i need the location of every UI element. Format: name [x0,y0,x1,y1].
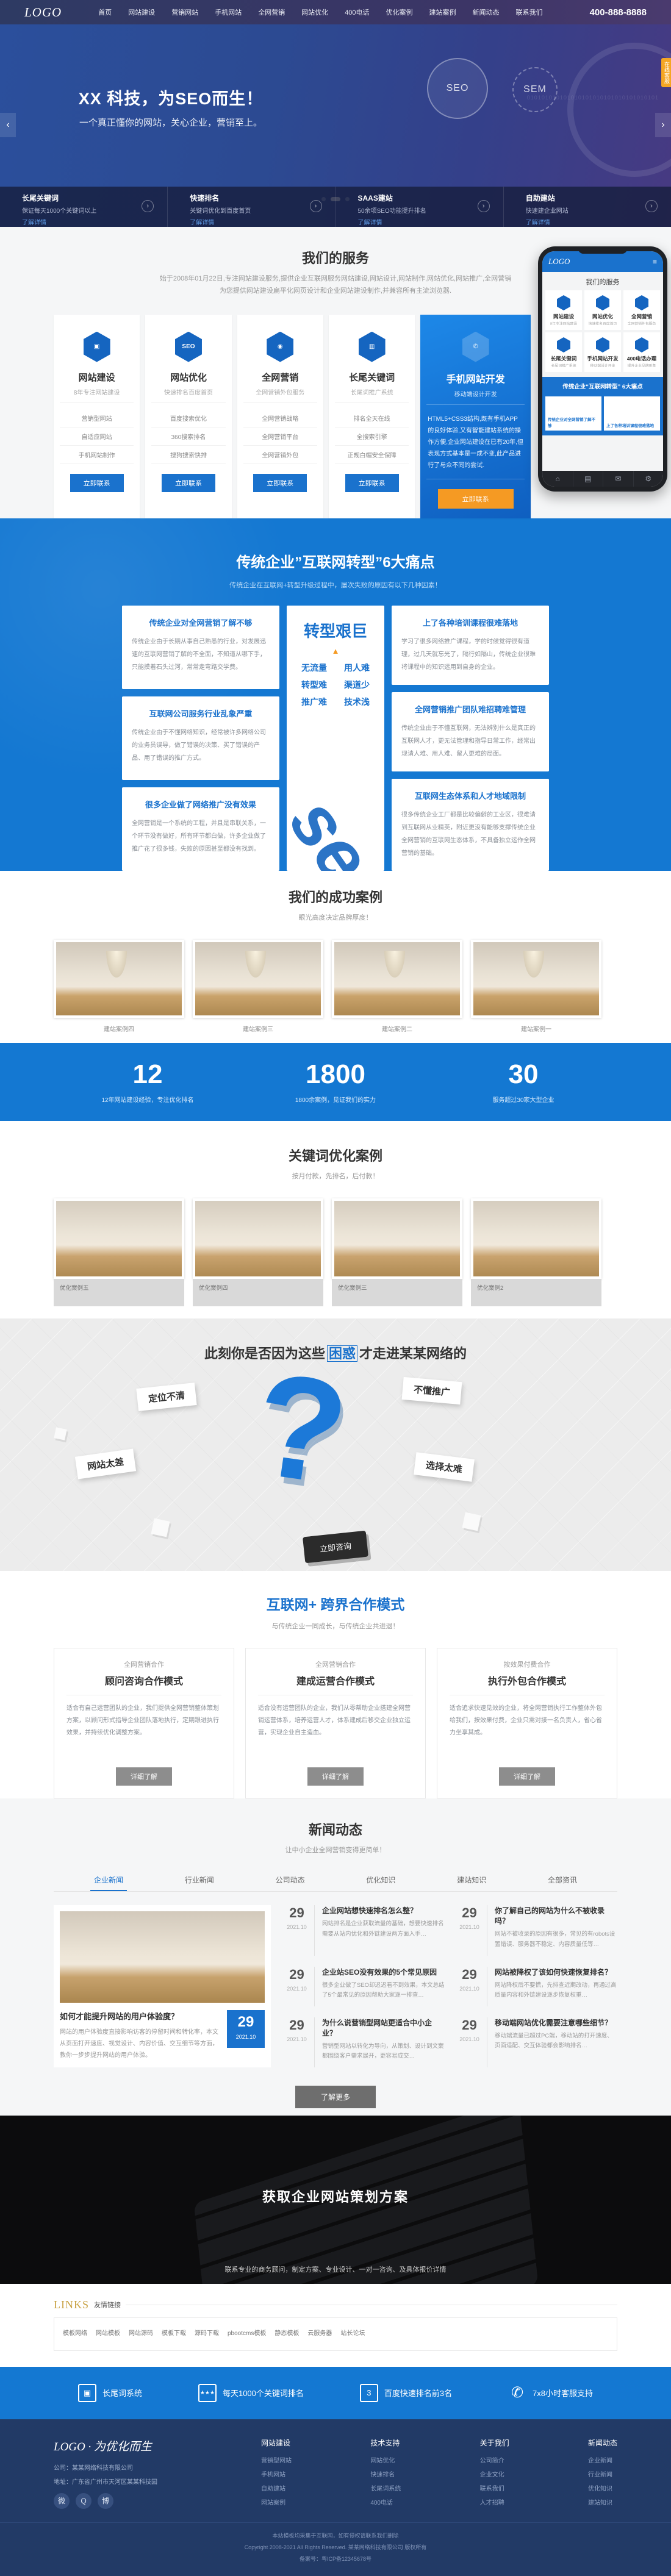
footer-col-build: 网站建设 营销型网站 手机网站 自助建站 网站案例 [261,2438,292,2511]
coop-card-build: 全网营销合作 建成运营合作模式 适合没有运营团队的企业，我们从零帮助企业搭建全网… [245,1648,426,1798]
nav-home[interactable]: 首页 [98,7,112,17]
tile-name: 400电话办理 [625,355,659,362]
tab-industry-news[interactable]: 行业新闻 [181,1870,218,1891]
featured-news-date: 29 2021.10 [227,2010,265,2048]
case-caption: 建站案例三 [193,1024,323,1033]
footer-link[interactable]: 优化知识 [588,2483,617,2492]
news-item[interactable]: 292021.10 为什么说营销型网站更适合中小企业？营销型网站以转化为导向，从… [285,2017,445,2067]
stat-desc: 服务超过30家大型企业 [429,1095,617,1104]
tab-company-updates[interactable]: 公司动态 [272,1870,309,1891]
coop-card-big: 顾问咨询合作模式 [66,1673,221,1695]
friend-link[interactable]: 云服务器 [307,2328,332,2337]
tile-sub: 长尾词推广系统 [548,363,579,368]
service-item: 自适应网站 [60,428,134,446]
stat-cases: 1800 1800余案例，见证我们的实力 [242,1059,429,1104]
date-ym: 2021.10 [459,2036,479,2042]
featured-news-excerpt: 网站的用户体验度直接影响访客的停留时间和转化率，本文从页面打开速度、视觉设计、内… [60,2027,220,2061]
phone-tile[interactable]: 全网营销全网营销外包服务 [623,290,660,330]
copyright-line2: Copyright 2008-2021 All Rights Reserved.… [0,2543,671,2551]
feature-keywords: ★★★ 每天1000个关键词排名 [198,2384,304,2402]
pain-card-title: 上了各种培训课程很难落地 [401,617,539,628]
pain-keyword: 推广难 [301,696,327,708]
contact-button[interactable]: 立即联系 [70,474,124,492]
phone-pain-box: 上了各种培训课程很难落地 [604,396,660,431]
service-card-longtail: ▥ 长尾关键词 长尾词推广系统 排名全天在线 全搜索引擎 正规白帽安全保障 立即… [329,315,415,518]
stat-number: 30 [429,1059,617,1090]
main-nav: 首页 网站建设 营销网站 手机网站 全网营销 网站优化 400电话 优化案例 建… [98,7,589,17]
carousel-next-arrow[interactable]: › [655,113,671,137]
cta-subtitle: 联系专业的商务顾问，制定方案、专业设计、一对一咨询、及具体报价详情 [0,2264,671,2274]
featured-news-title: 如何才能提升网站的用户体验度？ [60,2010,220,2022]
phone-pain-boxes: 传统企业对全网营销了解不够 上了各种培训课程很难落地 [542,394,663,435]
keyword-cases-section: 关键词优化案例 按月付款，先排名，后付款！ 优化案例五 优化案例四 优化案例三 … [0,1121,671,1318]
hamburger-icon[interactable]: ≡ [653,257,657,266]
tile-sub: 移动端设计开发 [587,363,618,368]
service-card-mobile-highlight: ✆ 手机网站开发 移动端设计开发 HTML5+CSS3结构,既有手机APP的良好… [420,315,531,518]
pain-points-section: 传统企业”互联网转型”6大痛点 传统企业在互联网+转型升级过程中，屡次失败的原因… [0,518,671,871]
footer-link[interactable]: 企业新闻 [588,2455,617,2464]
coop-card-text: 适合有自己运营团队的企业，我们提供全网营销整体策划方案，以顾问形式指导企业团队落… [66,1703,221,1761]
footer-link[interactable]: 营销型网站 [261,2455,292,2464]
coop-title: 互联网+ 跨界合作模式 [0,1593,671,1614]
pain-right-column: 上了各种培训课程很难落地 学习了很多网络推广课程，学的时候觉得很有道理，过几天就… [392,606,549,871]
footer-copyright: 本站模板均采集于互联网，如有侵权请联系我们删除 Copyright 2008-2… [0,2522,671,2576]
news-item-title: 为什么说营销型网站更适合中小企业？ [322,2017,445,2038]
strip-col-fast-rank: 快速排名 关键词优化到百度首页 了解详情 › [167,187,335,227]
pain-grid: 传统企业对全网营销了解不够 传统企业由于长期从事自己熟悉的行业，对发展迅速的互联… [122,606,549,871]
news-section: 新闻动态 让中小企业全网营销变得更简单！ 企业新闻 行业新闻 公司动态 优化知识… [0,1798,671,2116]
tile-name: 网站优化 [586,313,620,320]
hero-carousel: SEO SEM 01010101010101010101010101010101… [0,24,671,227]
news-item-title: 网站被降权了该如何快速恢复排名？ [495,1967,617,1977]
hero-title: XX 科技，为SEO而生！ [0,85,342,109]
pain-card-text: 学习了很多网络推广课程，学的时候觉得很有道理，过几天就忘光了，隔行如隔山，传统企… [401,635,539,674]
footer-link[interactable]: 400电话 [370,2497,401,2506]
news-item-date: 292021.10 [285,1967,315,2006]
contact-button[interactable]: 立即联系 [162,474,215,492]
weibo-icon[interactable]: 博 [98,2493,113,2509]
kcase-item[interactable]: 优化案例四 [193,1198,323,1306]
pain-card-title: 传统企业对全网营销了解不够 [132,617,270,628]
nav-mobile-site[interactable]: 手机网站 [215,7,242,17]
tab-all-news[interactable]: 全部资讯 [544,1870,581,1891]
phone-section-title: 我们的服务 [542,277,663,287]
strip-col-saas: SAAS建站 50余项SEO功能提升排名 了解详情 › [335,187,503,227]
feature-baidu-rank: 3 百度快速排名前3名 [360,2384,452,2402]
friend-link[interactable]: 站长论坛 [340,2328,365,2337]
nav-seo[interactable]: 网站优化 [301,7,328,17]
friend-link[interactable]: 模板下载 [162,2328,186,2337]
chevron-circle-icon[interactable]: › [645,200,658,212]
stat-clients: 30 服务超过30家大型企业 [429,1059,617,1104]
nav-whole-net-marketing[interactable]: 全网营销 [258,7,285,17]
nav-400-phone[interactable]: 400电话 [345,7,369,17]
pain-card: 全网营销推广团队难招聘难管理 传统企业由于不懂互联网，无法辨别什么是真正的互联网… [392,692,549,771]
tile-name: 网站建设 [547,313,581,320]
tab-seo-knowledge[interactable]: 优化知识 [362,1870,399,1891]
confusion-label-hard-choice: 选择太难 [414,1452,475,1481]
coop-card-small: 按效果付费合作 [450,1659,605,1669]
links-en-label: LINKS [54,2299,89,2311]
monitor-icon: ▣ [84,332,110,362]
nav-seo-cases[interactable]: 优化案例 [386,7,413,17]
hexagon-icon [635,337,648,352]
pain-card-title: 全网营销推广团队难招聘难管理 [401,703,539,715]
footer-company: 公司：某某网络科技有限公司 [54,2463,237,2472]
tile-sub: 快速排名百度首页 [587,321,618,326]
cube-decor [54,1427,66,1440]
footer-col-heading: 网站建设 [261,2438,292,2448]
case-photo [471,940,601,1018]
kcases-title: 关键词优化案例 [0,1145,671,1165]
hexagon-icon [635,295,648,310]
service-item: 百度搜索优化 [151,409,225,428]
case-item[interactable]: 建站案例四 [54,940,184,1033]
online-service-tab[interactable]: 在线客服 [661,58,671,87]
service-item: 全网营销平台 [243,428,317,446]
footer-link[interactable]: 行业新闻 [588,2469,617,2478]
footer-company-block: LOGO · 为优化而生 公司：某某网络科技有限公司 地址：广东省广州市天河区某… [54,2438,237,2511]
pain-card: 很多企业做了网络推广没有效果 全网营销是一个系统的工程，并且是串联关系，一个环节… [122,787,279,871]
date-day: 29 [227,2014,265,2031]
coop-card-big: 执行外包合作模式 [450,1673,605,1695]
case-caption: 建站案例二 [332,1024,462,1033]
service-card-title: 网站优化 [151,371,225,384]
pain-card-text: 传统企业由于不懂互联网，无法辨别什么是真正的互联网人才，更无法管理和指导日常工作… [401,722,539,760]
stat-desc: 12年网站建设经验，专注优化排名 [54,1095,242,1104]
friend-link[interactable]: 网站模板 [96,2328,120,2337]
chart-icon: ▥ [359,332,386,362]
pain-card-text: 传统企业由于长期从事自己熟悉的行业，对发展迅速的互联网营销了解的不全面，不知道从… [132,635,270,674]
kcase-caption: 优化案例四 [193,1279,323,1306]
hotline-number: 400-888-8888 [590,7,647,18]
footer-link[interactable]: 人才招聘 [480,2497,509,2506]
home-icon[interactable]: ⌂ [542,471,573,487]
feature-text: 百度快速排名前3名 [384,2387,452,2399]
copyright-line1: 本站模板均采集于互联网，如有侵权请联系我们删除 [0,2531,671,2539]
success-cases-section: 我们的成功案例 眼光高度决定品牌厚度！ 建站案例四 建站案例三 建站案例二 建站… [0,871,671,1043]
pain-card: 互联网公司服务行业乱象严重 传统企业由于不懂网络知识，经常被许多网络公司的业务员… [122,696,279,780]
nav-marketing-site[interactable]: 营销网站 [171,7,198,17]
news-title: 新闻动态 [0,1819,671,1839]
friend-link[interactable]: 静态模板 [274,2328,299,2337]
pain-left-column: 传统企业对全网营销了解不够 传统企业由于长期从事自己熟悉的行业，对发展迅速的互联… [122,606,279,871]
nav-news[interactable]: 新闻动态 [473,7,500,17]
news-item-title: 你了解自己的网站为什么不被收录吗？ [495,1905,617,1926]
grid-icon[interactable]: ▤ [573,471,603,487]
phone-screen: LOGO ≡ 我们的服务 网站建设8年专注网站建设 网站优化快速排名百度首页 全… [542,251,663,487]
news-item-excerpt: 网站降权后不要慌，先排查近期改动，再通过高质量内容和外链建设逐步恢复权重… [495,1981,617,2000]
case-photo [193,940,323,1018]
services-desc-line2: 为您提供网站建设扁平化网页设计和企业网站建设制作,并兼容所有主流浏览器. [220,287,451,295]
cube-decor [151,1518,170,1537]
feature-bar: ▣ 长尾词系统 ★★★ 每天1000个关键词排名 3 百度快速排名前3名 ✆ 7… [0,2367,671,2419]
settings-icon[interactable]: ⚙ [633,471,664,487]
date-day: 29 [285,1905,308,1921]
icp-number[interactable]: 备案号：粤ICP备12345678号 [0,2555,671,2563]
friend-link[interactable]: 源码下载 [195,2328,219,2337]
news-item-excerpt: 网站不被收录的原因有很多，常见的有robots设置错误、服务器不稳定、内容质量低… [495,1930,617,1949]
phone-tile[interactable]: 400电话办理提升企业品牌形象 [623,332,660,372]
hero-subtitle: 一个真正懂你的网站，关心企业，营销至上。 [0,116,342,129]
service-card-title: 网站建设 [60,371,134,384]
friend-links-section: LINKS 友情链接 模板网络 网站模板 网站源码 模板下载 源码下载 pboo… [0,2284,671,2367]
hexagon-icon [596,295,609,310]
date-day: 29 [458,1967,481,1983]
phone-pain-box: 传统企业对全网营销了解不够 [545,396,601,431]
phone-tile[interactable]: 长尾关键词长尾词推广系统 [545,332,582,372]
date-ym: 2021.10 [236,2034,256,2040]
footer-link[interactable]: 网站案例 [261,2497,292,2506]
seo-watermark: seo [287,785,384,871]
confusion-label-positioning: 定位不清 [136,1383,196,1411]
news-item-excerpt: 网站排名是企业获取流量的基础，想要快速排名需要从站内优化和外链建设两方面入手… [322,1919,445,1939]
carousel-prev-arrow[interactable]: ‹ [0,113,16,137]
site-logo[interactable]: LOGO [24,5,62,20]
nav-site-cases[interactable]: 建站案例 [429,7,456,17]
footer-logo: LOGO · 为优化而生 [54,2438,237,2454]
monitor-icon: ▣ [78,2384,96,2402]
service-card-sub: 全网营销外包服务 [243,387,317,403]
links-box: 模板网络 网站模板 网站源码 模板下载 源码下载 pbootcms模板 静态模板… [54,2317,617,2351]
tile-name: 全网营销 [625,313,659,320]
kcase-item[interactable]: 优化案例三 [332,1198,462,1306]
featured-news[interactable]: 如何才能提升网站的用户体验度？ 网站的用户体验度直接影响访客的停留时间和转化率，… [54,1905,271,2067]
case-photo [332,940,462,1018]
feature-support: ✆ 7x8小时客服支持 [508,2384,593,2402]
news-item[interactable]: 292021.10 移动端网站优化需要注意哪些细节？移动端流量已超过PC端，移动… [458,2017,617,2067]
binary-decor: 010101010101010101010101010101010101 [527,95,659,101]
case-row: 建站案例四 建站案例三 建站案例二 建站案例一 [54,940,617,1033]
news-subtitle: 让中小企业全网营销变得更简单！ [0,1845,671,1857]
date-ym: 2021.10 [287,2036,307,2042]
strip-more-link[interactable]: 了解详情 [358,220,382,226]
news-item-date: 292021.10 [458,1905,487,1955]
kcase-caption: 优化案例五 [54,1279,184,1306]
transform-hard-label: 转型艰巨 [293,619,378,642]
pain-keyword: 无流量 [301,662,327,674]
date-day: 29 [285,2017,308,2033]
news-item[interactable]: 292021.10 你了解自己的网站为什么不被收录吗？网站不被收录的原因有很多，… [458,1905,617,1955]
phone-header: LOGO ≡ [542,251,663,272]
cta-title: 获取企业网站策划方案 [0,2116,671,2206]
friend-link[interactable]: 网站源码 [129,2328,153,2337]
footer-col-heading: 关于我们 [480,2438,509,2448]
footer-col-about: 关于我们 公司简介 企业文化 联系我们 人才招聘 [480,2438,509,2511]
confusion-label-bad-site: 网站太差 [75,1448,136,1479]
kcase-caption: 优化案例三 [332,1279,462,1306]
date-day: 29 [458,1905,481,1921]
service-card-sub: 8年专注网站建设 [60,387,134,403]
stats-bar: 12 12年网站建设经验，专注优化排名 1800 1800余案例，见证我们的实力… [0,1043,671,1121]
pain-card-text: 传统企业由于不懂网络知识，经常被许多网络公司的业务员误导，做了错误的决策、买了错… [132,726,270,765]
footer-link[interactable]: 自助建站 [261,2483,292,2492]
footer-link[interactable]: 手机网站 [261,2469,292,2478]
date-day: 29 [285,1967,308,1983]
kcase-photo [332,1198,462,1279]
kcase-item[interactable]: 优化案例2 [471,1198,601,1306]
kcase-row: 优化案例五 优化案例四 优化案例三 优化案例2 [54,1198,617,1306]
case-caption: 建站案例一 [471,1024,601,1033]
feature-text: 7x8小时客服支持 [533,2387,593,2399]
pain-keyword: 技术浅 [344,696,370,708]
pain-title: 传统企业”互联网转型”6大痛点 [0,550,671,571]
coop-card-small: 全网营销合作 [66,1659,221,1669]
strip-col-self-build: 自助建站 快速建企业网站 了解详情 › [503,187,671,227]
pain-keyword-row: 转型难渠道少 [293,679,378,691]
triangle-icon: ▲ [293,646,378,656]
droplet-icon: ◉ [267,332,293,362]
footer-link[interactable]: 快速排名 [370,2469,401,2478]
learn-more-button[interactable]: 详细了解 [116,1767,172,1786]
chevron-circle-icon[interactable]: › [310,200,322,212]
date-ym: 2021.10 [459,1924,479,1930]
service-card-title: 全网营销 [243,371,317,384]
friend-link[interactable]: pbootcms模板 [228,2328,266,2337]
service-item: 排名全天在线 [335,409,409,428]
news-item-date: 292021.10 [458,2017,487,2067]
footer-link[interactable]: 企业文化 [480,2469,509,2478]
service-item: 360搜索排名 [151,428,225,446]
seo-icon: SEO [175,332,202,362]
links-cn-label: 友情链接 [94,2300,121,2309]
footer: LOGO · 为优化而生 公司：某某网络科技有限公司 地址：广东省广州市天河区某… [0,2419,671,2576]
services-desc-line1: 始于2008年01月22日,专注网站建设服务,提供企业互联网服务网站建设,网站设… [160,275,511,282]
service-card-sub: 快速排名百度首页 [151,387,225,403]
gear-ring-graphic [567,43,671,177]
links-header: LINKS 友情链接 [54,2299,617,2311]
service-card-sub: 移动端设计开发 [426,389,525,405]
cooperation-section: 互联网+ 跨界合作模式 与传统企业一同成长，与传统企业共进退！ 全网营销合作 顾… [0,1571,671,1798]
feature-text: 每天1000个关键词排名 [223,2387,304,2399]
news-item[interactable]: 292021.10 网站被降权了该如何快速恢复排名？网站降权后不要慌，先排查近期… [458,1967,617,2006]
phone-service-grid: 网站建设8年专注网站建设 网站优化快速排名百度首页 全网营销全网营销外包服务 长… [542,290,663,372]
footer-col-heading: 新闻动态 [588,2438,617,2448]
news-item-excerpt: 移动端流量已超过PC端，移动站的打开速度、页面适配、交互体验都会影响排名… [495,2031,617,2051]
pain-keyword-row: 推广难技术浅 [293,696,378,708]
contact-button-orange[interactable]: 立即联系 [438,489,514,509]
footer-col-news: 新闻动态 企业新闻 行业新闻 优化知识 建站知识 [588,2438,617,2511]
pain-keyword-row: 无流量用人难 [293,662,378,674]
pain-center-card: 转型艰巨 ▲ 无流量用人难 转型难渠道少 推广难技术浅 seo [287,606,384,871]
phone-tile[interactable]: 网站优化快速排名百度首页 [584,290,621,330]
seo-circle-graphic: SEO [427,58,488,119]
strip-more-link[interactable]: 了解详情 [190,220,214,226]
strip-more-link[interactable]: 了解详情 [526,220,550,226]
kcase-item[interactable]: 优化案例五 [54,1198,184,1306]
consult-now-button[interactable]: 立即咨询 [303,1530,368,1563]
confusion-section: 此刻你是否因为这些困惑才走进某某网络的 ? 定位不清 不懂推广 网站太差 选择太… [0,1318,671,1571]
social-icons: 微 Q 博 [54,2493,237,2509]
tab-build-knowledge[interactable]: 建站知识 [453,1870,490,1891]
kcase-photo [54,1198,184,1279]
cta-section: 获取企业网站策划方案 联系专业的商务顾问，制定方案、专业设计、一对一咨询、及具体… [0,2116,671,2284]
cases-subtitle: 眼光高度决定品牌厚度！ [0,912,671,925]
featured-news-photo [60,1911,265,2003]
nav-contact[interactable]: 联系我们 [516,7,543,17]
service-cards-row: ▣ 网站建设 8年专注网站建设 营销型网站 自适应网站 手机网站制作 立即联系 … [54,315,531,518]
date-ym: 2021.10 [459,1986,479,1992]
news-list: 292021.10 企业网站想快速排名怎么整？网站排名是企业获取流量的基础，想要… [285,1905,617,2067]
qq-icon[interactable]: Q [76,2493,91,2509]
coop-card-big: 建成运营合作模式 [258,1673,413,1695]
friend-link[interactable]: 模板网络 [63,2328,87,2337]
tile-sub: 全网营销外包服务 [626,321,657,326]
tile-sub: 8年专注网站建设 [548,321,579,326]
footer-address: 地址：广东省广州市天河区某某科技园 [54,2477,237,2486]
strip-more-link[interactable]: 了解详情 [22,220,46,226]
case-caption: 建站案例四 [54,1024,184,1033]
news-more-button[interactable]: 了解更多 [295,2086,376,2108]
contact-button[interactable]: 立即联系 [345,474,399,492]
wechat-icon[interactable]: 微 [54,2493,70,2509]
footer-link[interactable]: 联系我们 [480,2483,509,2492]
divider [126,2305,617,2305]
chevron-circle-icon[interactable]: › [478,200,490,212]
pain-card-title: 互联网公司服务行业乱象严重 [132,707,270,719]
case-item[interactable]: 建站案例三 [193,940,323,1033]
pain-keyword: 转型难 [301,679,327,691]
contact-button[interactable]: 立即联系 [253,474,307,492]
coop-card-text: 适合没有运营团队的企业，我们从零帮助企业搭建全网营销运营体系，培养运营人才，体系… [258,1703,413,1761]
strip-col-longtail: 长尾关键词 保证每天1000个关键词以上 了解详情 › [0,187,167,227]
stat-desc: 1800余案例，见证我们的实力 [242,1095,429,1104]
footer-link[interactable]: 建站知识 [588,2497,617,2506]
case-item[interactable]: 建站案例一 [471,940,601,1033]
message-icon[interactable]: ✉ [603,471,633,487]
news-body: 如何才能提升网站的用户体验度？ 网站的用户体验度直接影响访客的停留时间和转化率，… [54,1905,617,2067]
stat-number: 1800 [242,1059,429,1090]
pain-card: 传统企业对全网营销了解不够 传统企业由于长期从事自己熟悉的行业，对发展迅速的互联… [122,606,279,689]
stat-experience: 12 12年网站建设经验，专注优化排名 [54,1059,242,1104]
service-card-title: 长尾关键词 [335,371,409,384]
calendar-3-icon: 3 [360,2384,378,2402]
date-ym: 2021.10 [287,1986,307,1992]
news-item-title: 企业网站想快速排名怎么整？ [322,1905,445,1916]
news-item[interactable]: 292021.10 企业站SEO没有效果的5个常见原因很多企业做了SEO却迟迟看… [285,1967,445,2006]
tab-company-news[interactable]: 企业新闻 [90,1870,127,1891]
case-photo [54,940,184,1018]
phone-mockup: LOGO ≡ 我们的服务 网站建设8年专注网站建设 网站优化快速排名百度首页 全… [538,246,667,492]
kcase-photo [471,1198,601,1279]
news-item-title: 移动端网站优化需要注意哪些细节？ [495,2017,617,2028]
tile-name: 长尾关键词 [547,355,581,362]
news-item[interactable]: 292021.10 企业网站想快速排名怎么整？网站排名是企业获取流量的基础，想要… [285,1905,445,1955]
footer-link[interactable]: 公司简介 [480,2455,509,2464]
case-item[interactable]: 建站案例二 [332,940,462,1033]
service-item: 营销型网站 [60,409,134,428]
pain-keyword: 渠道少 [344,679,370,691]
service-item: 全网营销战略 [243,409,317,428]
coop-card-text: 适合追求快速见效的企业，将全网营销执行工作整体外包给我们，按效果付费，企业只需对… [450,1703,605,1761]
service-item: 正规白帽安全保障 [335,446,409,464]
cases-title: 我们的成功案例 [0,887,671,906]
coop-subtitle: 与传统企业一同成长，与传统企业共进退！ [0,1621,671,1631]
phone-tile[interactable]: 手机网站开发移动端设计开发 [584,332,621,372]
phone-tile[interactable]: 网站建设8年专注网站建设 [545,290,582,330]
footer-col-heading: 技术支持 [370,2438,401,2448]
learn-more-button[interactable]: 详细了解 [499,1767,555,1786]
news-tabs: 企业新闻 行业新闻 公司动态 优化知识 建站知识 全部资讯 [54,1870,617,1892]
footer-link[interactable]: 长尾词系统 [370,2483,401,2492]
pain-card-text: 很多传统企业工厂都是比较偏僻的工业区，很难请到互联网从业精英，附近更没有能够支撑… [401,809,539,860]
nav-website-build[interactable]: 网站建设 [128,7,155,17]
cube-decor [462,1512,481,1531]
footer-link[interactable]: 网站优化 [370,2455,401,2464]
learn-more-button[interactable]: 详细了解 [307,1767,364,1786]
coop-card-consult: 全网营销合作 顾问咨询合作模式 适合有自己运营团队的企业，我们提供全网营销整体策… [54,1648,234,1798]
footer-col-support: 技术支持 网站优化 快速排名 长尾词系统 400电话 [370,2438,401,2511]
